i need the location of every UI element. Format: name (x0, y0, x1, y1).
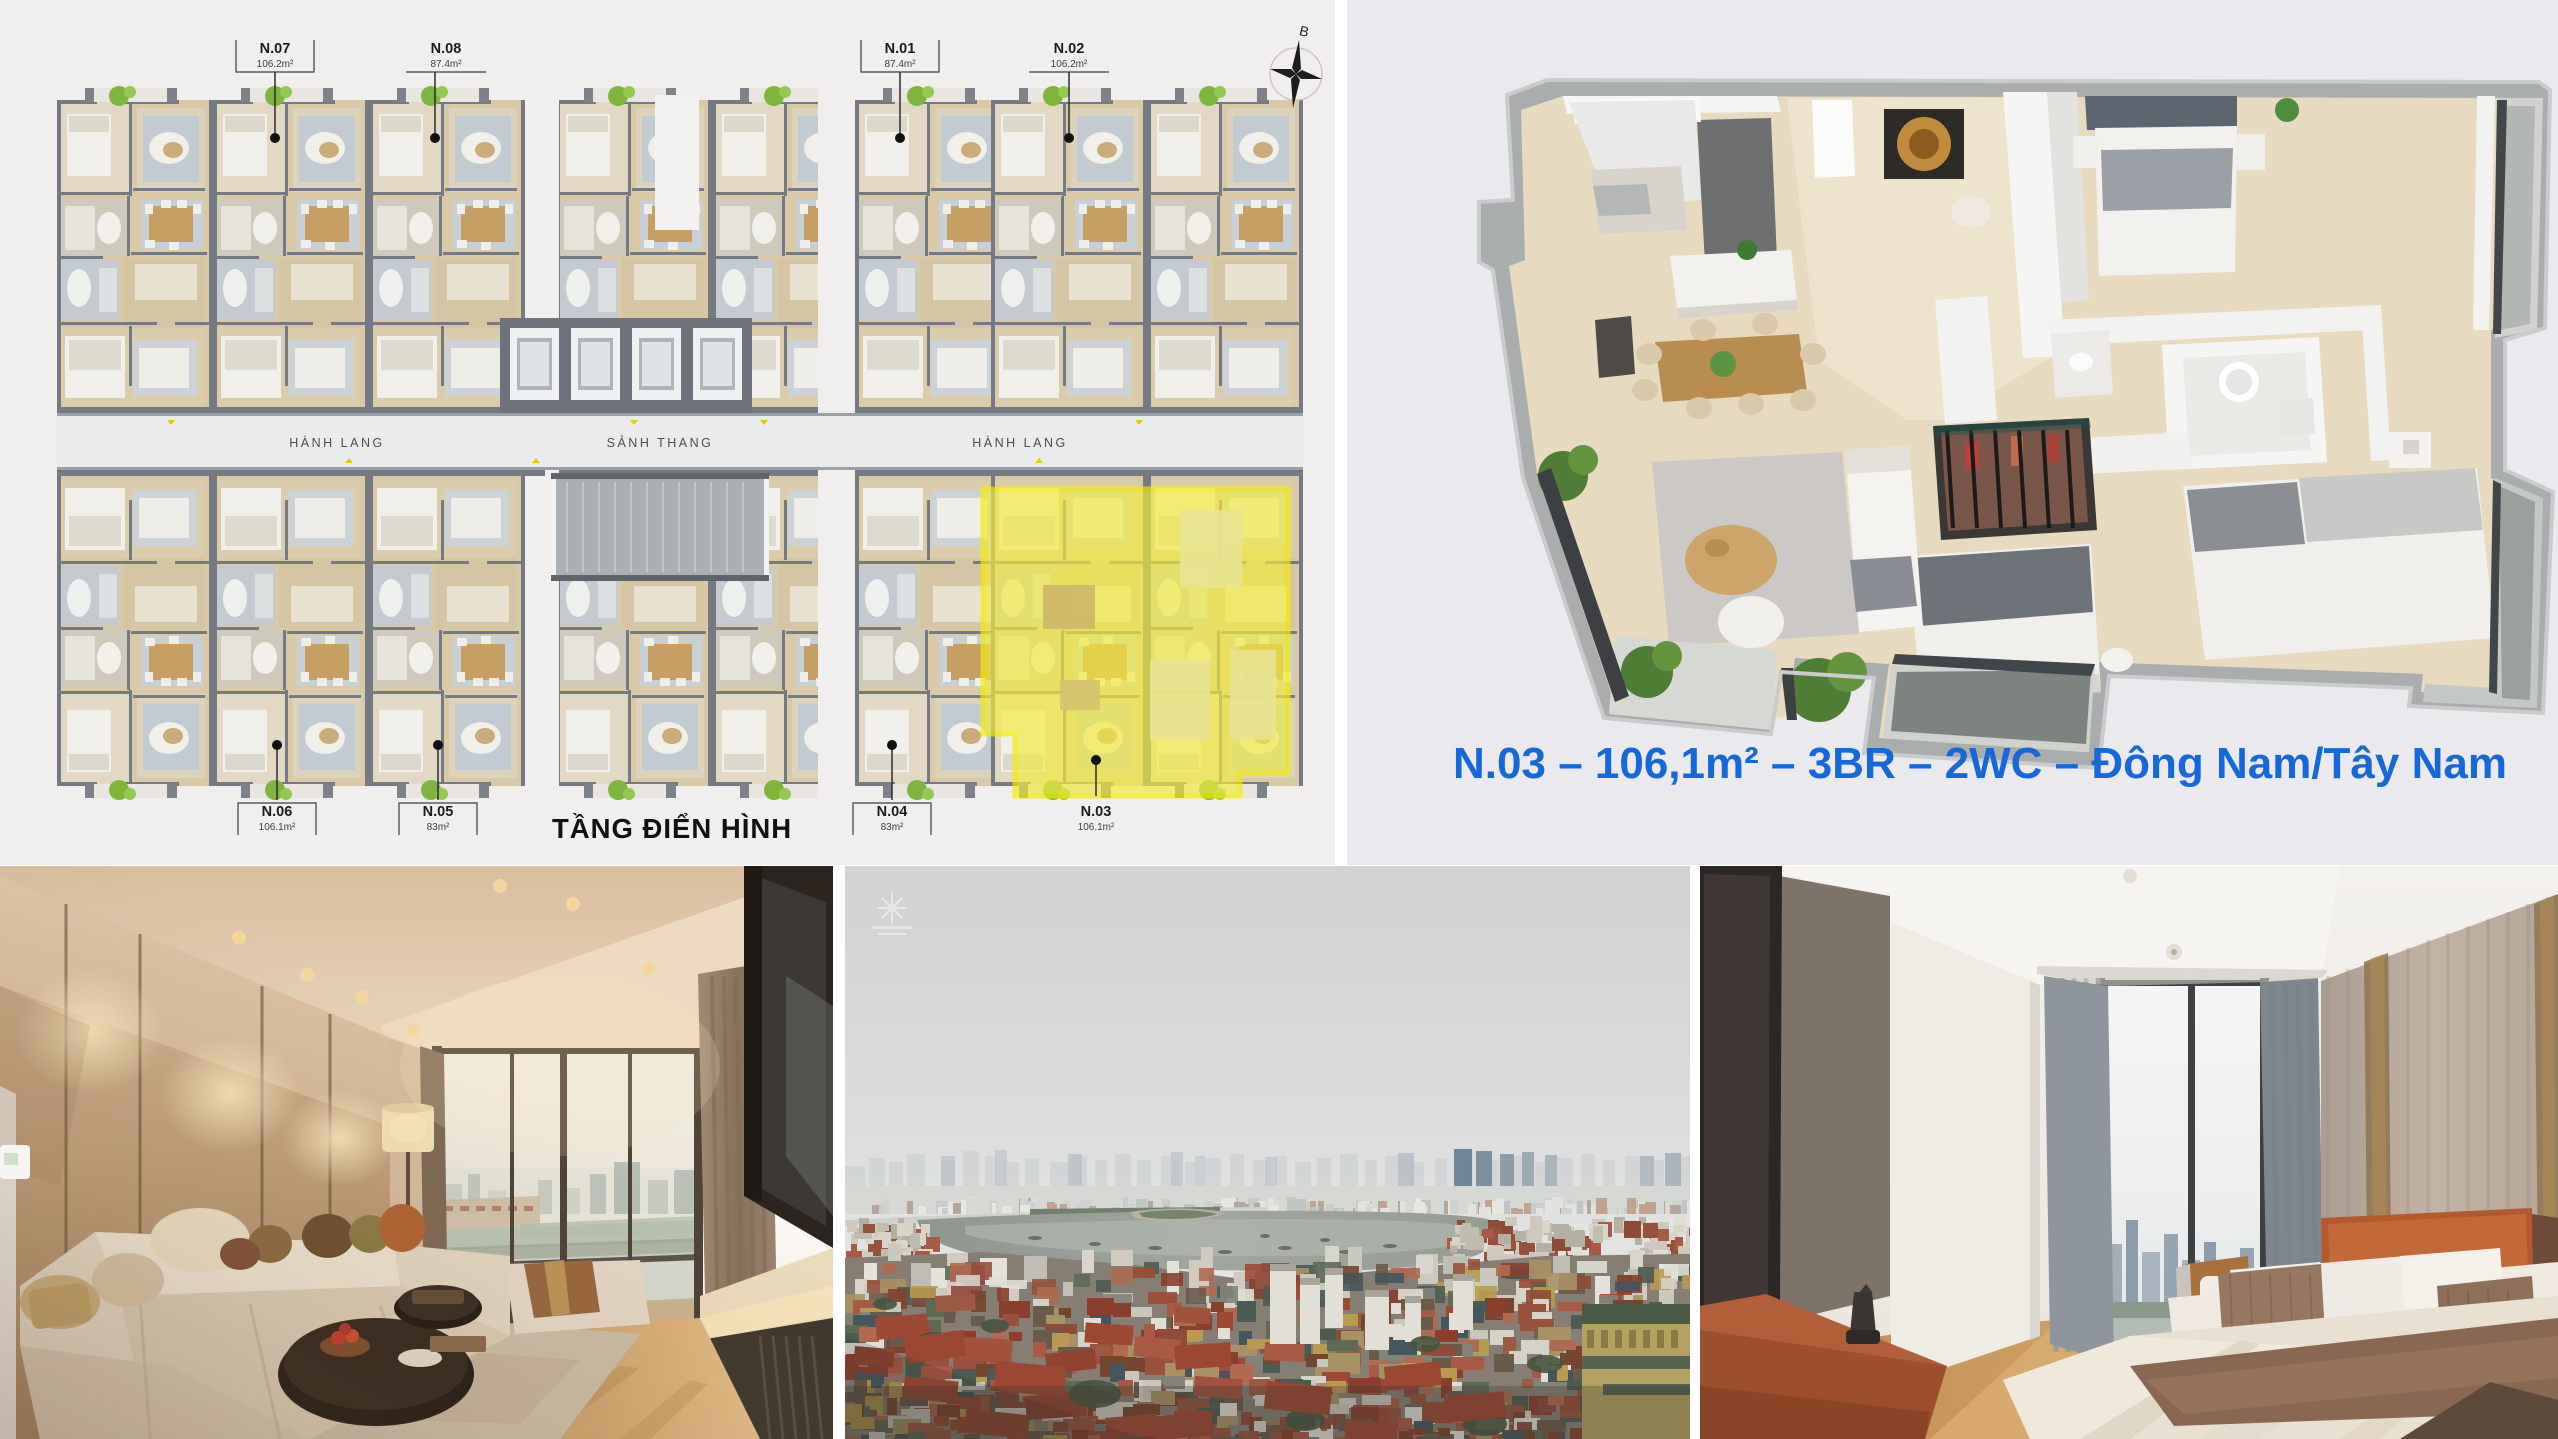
svg-text:N.05: N.05 (423, 804, 454, 820)
svg-text:TẦNG ĐIỂN HÌNH: TẦNG ĐIỂN HÌNH (552, 813, 792, 844)
svg-text:SẢNH THANG: SẢNH THANG (607, 435, 714, 450)
svg-text:N.02: N.02 (1054, 41, 1085, 57)
svg-text:N.08: N.08 (431, 41, 462, 57)
svg-text:106.1m²: 106.1m² (259, 822, 296, 833)
svg-text:106.1m²: 106.1m² (1078, 822, 1115, 833)
svg-text:N.01: N.01 (885, 41, 916, 57)
svg-text:87.4m²: 87.4m² (430, 59, 462, 70)
svg-text:N.07: N.07 (260, 41, 291, 57)
svg-text:83m²: 83m² (427, 822, 450, 833)
svg-text:83m²: 83m² (881, 822, 904, 833)
svg-text:N.04: N.04 (877, 804, 908, 820)
svg-text:87.4m²: 87.4m² (884, 59, 916, 70)
svg-text:N.03: N.03 (1081, 804, 1112, 820)
svg-text:106.2m²: 106.2m² (257, 59, 294, 70)
svg-text:HÀNH LANG: HÀNH LANG (289, 435, 384, 450)
svg-text:N.03 – 106,1m² – 3BR – 2WC – Đ: N.03 – 106,1m² – 3BR – 2WC – Đông Nam/Tâ… (1453, 739, 2507, 788)
svg-text:N.06: N.06 (262, 804, 293, 820)
svg-text:HÀNH LANG: HÀNH LANG (972, 435, 1067, 450)
svg-text:106.2m²: 106.2m² (1051, 59, 1088, 70)
